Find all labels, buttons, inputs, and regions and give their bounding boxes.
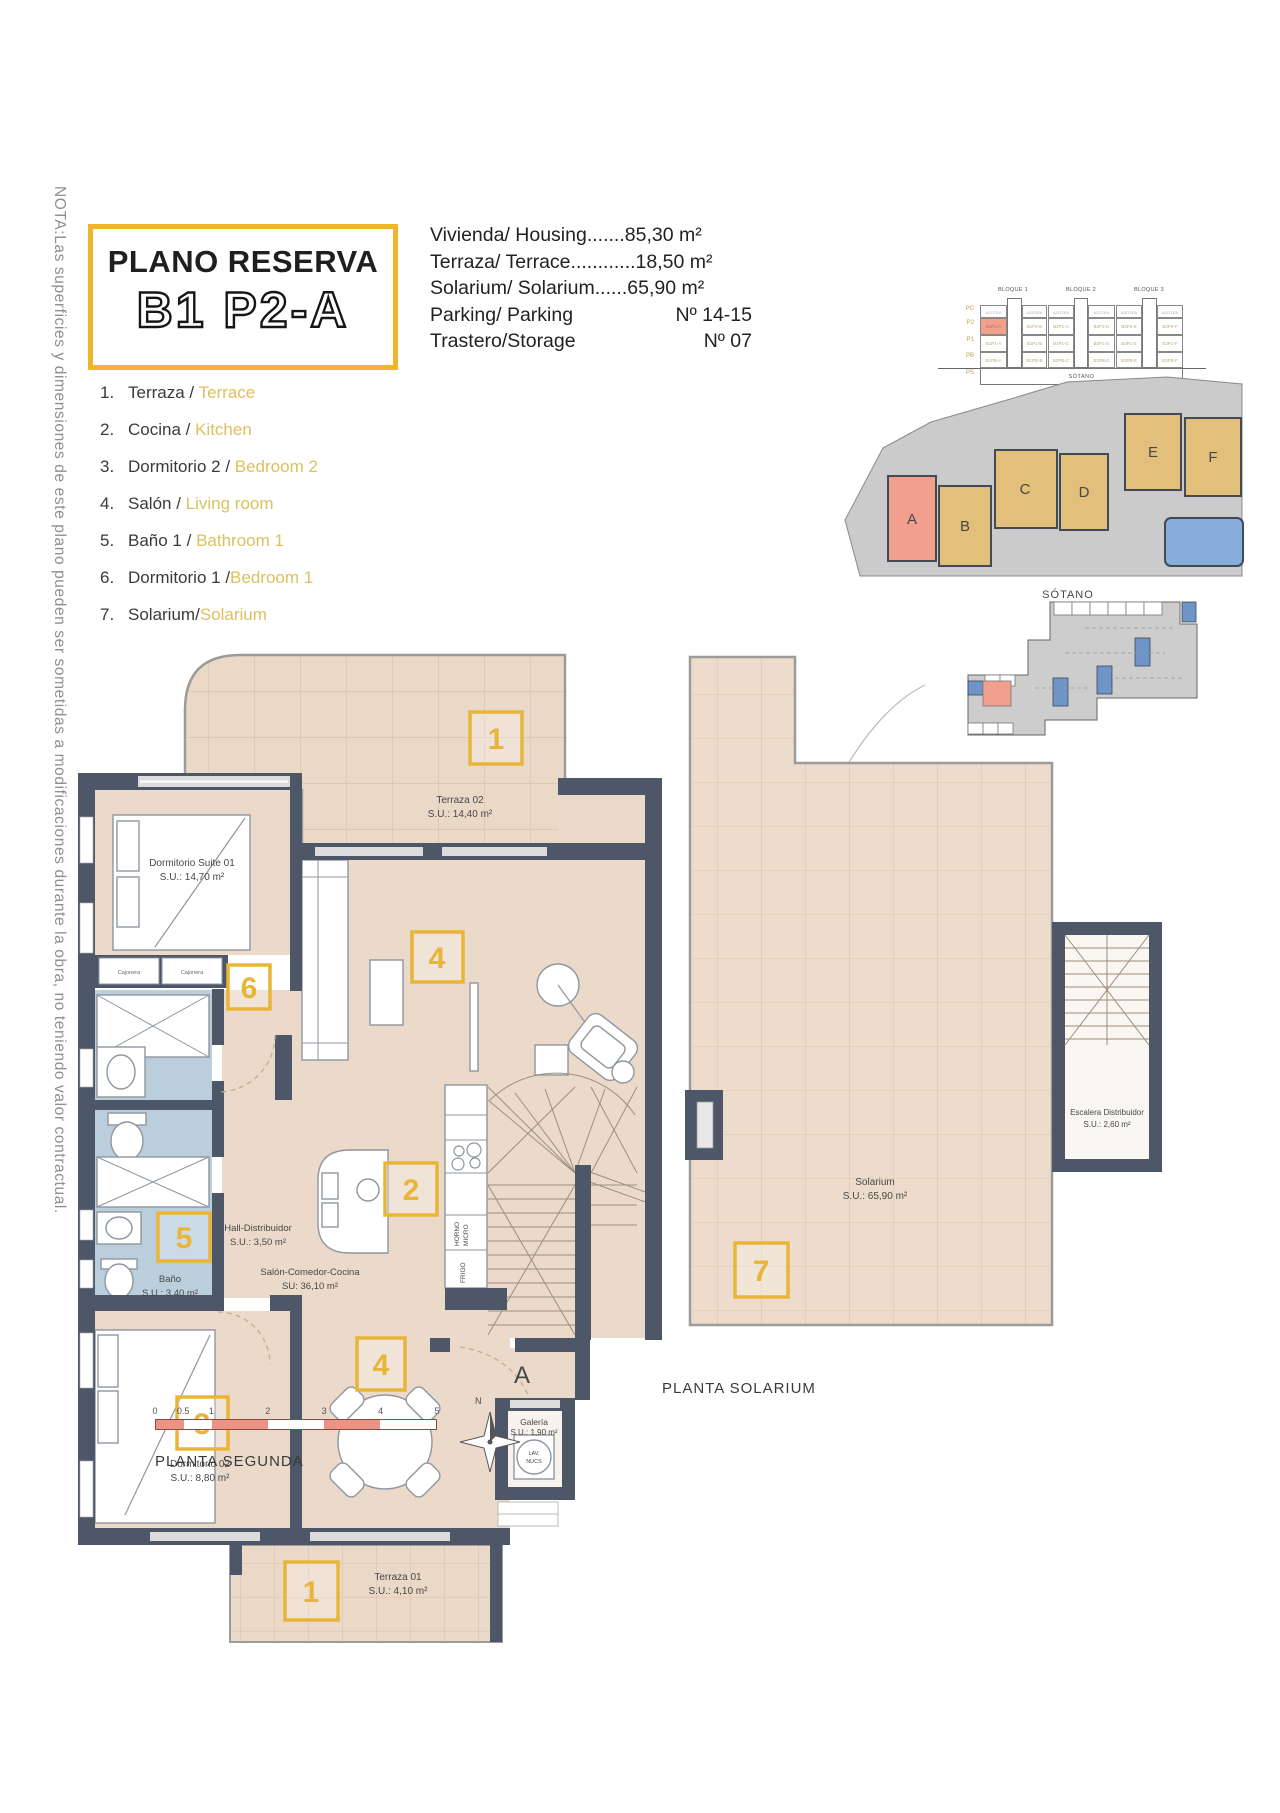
tag-suite: 6 xyxy=(228,965,270,1009)
caption-planta-segunda: PLANTA SEGUNDA xyxy=(155,1453,304,1470)
side-table xyxy=(535,1045,568,1075)
pool xyxy=(1165,518,1243,566)
site-letter-e: E xyxy=(1148,444,1158,461)
terraza01-name: Terraza 01 xyxy=(374,1572,422,1583)
main-floor-plan: HORNO MICRO FRIGO xyxy=(70,645,670,1655)
roof-cell: AZOTEA xyxy=(980,305,1007,318)
legend-item-7: 7.Solarium/Solarium xyxy=(100,605,318,642)
hall-name: Hall-Distribuidor xyxy=(224,1223,292,1234)
site-letter-c: C xyxy=(1020,481,1031,498)
room-legend: 1.Terraza / Terrace 2.Cocina / Kitchen 3… xyxy=(100,383,318,642)
unit-cell: B2PB-C xyxy=(1048,352,1074,368)
bano-name: Baño xyxy=(159,1274,181,1285)
wall-entry-left xyxy=(430,1338,450,1352)
svg-text:1: 1 xyxy=(488,723,505,756)
stair-tower xyxy=(1142,298,1157,368)
caption-planta-solarium: PLANTA SOLARIUM xyxy=(662,1380,816,1397)
tag-dining: 4 xyxy=(357,1338,405,1390)
horno-label: HORNO xyxy=(454,1222,461,1246)
spec-parking: Parking/ ParkingNº 14-15 xyxy=(430,302,752,329)
roof-cell: AZOTEA xyxy=(1048,305,1074,318)
site-letter-d: D xyxy=(1079,484,1090,501)
toilet-1 xyxy=(111,1122,143,1160)
wall-bath-hall xyxy=(212,1193,224,1311)
spec-vivienda: Vivienda/ Housing.......85,30 m² xyxy=(430,222,752,249)
tag-bano: 5 xyxy=(158,1213,210,1261)
legend-item-6: 6.Dormitorio 1 /Bedroom 1 xyxy=(100,568,318,605)
kitchen-island xyxy=(318,1150,388,1253)
title-box: PLANO RESERVA B1 P2-A xyxy=(88,224,398,370)
wall-counter-bottom xyxy=(445,1288,507,1310)
washer-label-1: LAV. xyxy=(528,1451,539,1457)
floor-label-p2: P2 xyxy=(944,320,974,326)
unit-cell: B2P2-C xyxy=(1048,318,1074,335)
tag-solarium: 7 xyxy=(735,1243,788,1297)
scale-segments xyxy=(155,1419,437,1430)
wall-left xyxy=(78,773,95,1545)
unit-cell: B3P1-E xyxy=(1116,335,1142,352)
unit-cell: B2P2-D xyxy=(1088,318,1115,335)
floor-label-pb: PB xyxy=(944,353,974,359)
plan-title: PLANO RESERVA xyxy=(93,244,393,280)
spec-solarium: Solarium/ Solarium......65,90 m² xyxy=(430,275,752,302)
terraza02-name: Terraza 02 xyxy=(436,795,484,806)
bano-area: S.U.: 3,40 m² xyxy=(142,1288,198,1299)
svg-text:2: 2 xyxy=(403,1174,420,1207)
wall-bath-divider xyxy=(95,1100,213,1110)
suite-area: S.U.: 14,70 m² xyxy=(160,872,225,883)
terraza02-area: S.U.: 14,40 m² xyxy=(428,809,493,820)
salon-area: SU: 36,10 m² xyxy=(282,1281,338,1292)
roof-cell: AZOTEA xyxy=(1157,305,1183,318)
cajonera-label-2: Cajonera xyxy=(181,970,204,976)
unit-cell: B1P1-A xyxy=(980,335,1007,352)
entry-letter: A xyxy=(514,1362,530,1389)
pillow xyxy=(98,1391,118,1443)
site-plan: A B C D E F xyxy=(835,368,1255,583)
floorplan-sheet: NOTA:Las superficies y dimensiones de es… xyxy=(0,0,1280,1813)
island-stool xyxy=(322,1173,338,1199)
svg-text:6: 6 xyxy=(241,972,258,1005)
tv-board xyxy=(470,983,478,1071)
terraza01-area: S.U.: 4,10 m² xyxy=(369,1586,429,1597)
unit-cell: B1PB-A xyxy=(980,352,1007,368)
stair-tower xyxy=(1007,298,1022,368)
tag-kitchen: 2 xyxy=(385,1163,437,1215)
sink-2 xyxy=(106,1217,132,1239)
unit-cell: B3PB-E xyxy=(1116,352,1142,368)
spec-trastero: Trastero/StorageNº 07 xyxy=(430,328,752,355)
washer-label-2: NUCS xyxy=(526,1459,542,1465)
island-stool xyxy=(322,1203,338,1227)
wall-entry-right xyxy=(515,1338,575,1352)
pillow xyxy=(98,1335,118,1387)
suite-name: Dormitorio Suite 01 xyxy=(149,858,235,869)
legend-item-5: 5.Baño 1 / Bathroom 1 xyxy=(100,531,318,568)
unit-cell: B2P1-D xyxy=(1088,335,1115,352)
elevation-block3-title: BLOQUE 3 xyxy=(1114,287,1184,293)
floor-label-p1: P1 xyxy=(944,337,974,343)
floor-label-pc: PC xyxy=(944,306,974,312)
unit-code: B1 P2-A xyxy=(93,281,393,339)
island-sink xyxy=(357,1179,379,1201)
wall-hall-stub xyxy=(275,1035,292,1100)
unit-cell: B3PB-F xyxy=(1157,352,1183,368)
coffee-table xyxy=(370,960,403,1025)
site-letter-f: F xyxy=(1208,449,1217,466)
north-label: N xyxy=(475,1396,482,1406)
solarium-plan: Escalera Distribuidor S.U.: 2,60 m² Sola… xyxy=(585,650,1185,1410)
unit-cell: B2PB-D xyxy=(1088,352,1115,368)
elevation-block1-title: BLOQUE 1 xyxy=(978,287,1048,293)
legend-item-4: 4.Salón / Living room xyxy=(100,494,318,531)
wall-bath-hall xyxy=(212,989,224,1045)
legend-item-3: 3.Dormitorio 2 / Bedroom 2 xyxy=(100,457,318,494)
unit-cell-highlight: B1P2-A xyxy=(980,318,1007,335)
ext-step xyxy=(498,1514,558,1526)
solarium-area: S.U.: 65,90 m² xyxy=(843,1191,908,1202)
cajonera-label-1: Cajonera xyxy=(118,970,141,976)
legend-item-1: 1.Terraza / Terrace xyxy=(100,383,318,420)
scale-bar: 0 0.5 1 2 3 4 5 xyxy=(155,1406,437,1430)
compass-icon: N xyxy=(455,1390,525,1480)
unit-cell: B3P2-E xyxy=(1116,318,1142,335)
wall-suite-right xyxy=(290,773,302,991)
unit-cell: B2P1-C xyxy=(1048,335,1074,352)
hall-area: S.U.: 3,50 m² xyxy=(230,1237,286,1248)
roof-cell: AZOTEA xyxy=(1022,305,1047,318)
salon-name: Salón-Comedor-Cocina xyxy=(260,1267,360,1278)
pillow xyxy=(117,877,139,927)
svg-text:5: 5 xyxy=(176,1222,193,1255)
unit-cell: B1P1-B xyxy=(1022,335,1047,352)
dorm2-area: S.U.: 8,80 m² xyxy=(171,1473,231,1484)
wall-terr01-stub xyxy=(490,1545,502,1642)
svg-text:7: 7 xyxy=(753,1255,770,1288)
surface-specs: Vivienda/ Housing.......85,30 m² Terraza… xyxy=(430,222,752,355)
legend-item-2: 2.Cocina / Kitchen xyxy=(100,420,318,457)
solarium-name: Solarium xyxy=(855,1177,894,1188)
svg-text:4: 4 xyxy=(429,942,446,975)
sotano-label: SÓTANO xyxy=(1042,588,1094,601)
svg-text:4: 4 xyxy=(373,1349,390,1382)
unit-cell: B3P2-F xyxy=(1157,318,1183,335)
spec-terraza: Terraza/ Terrace............18,50 m² xyxy=(430,249,752,276)
stair-enclosure: Escalera Distribuidor S.U.: 2,60 m² xyxy=(1052,922,1162,1172)
elevation-block2-title: BLOQUE 2 xyxy=(1046,287,1116,293)
frigo-label: FRIGO xyxy=(460,1262,467,1283)
sink-1 xyxy=(107,1055,135,1089)
solarium-left-slot xyxy=(697,1102,713,1148)
site-letter-b: B xyxy=(960,518,970,535)
tag-terraza02: 1 xyxy=(470,712,522,764)
note-vertical: NOTA:Las superficies y dimensiones de es… xyxy=(50,186,68,1316)
solarium-floor xyxy=(690,657,1052,1325)
wall-terr01-stub xyxy=(230,1545,242,1575)
ext-step xyxy=(498,1502,558,1514)
stairs-area: S.U.: 2,60 m² xyxy=(1083,1120,1130,1129)
tag-terraza01: 1 xyxy=(285,1562,338,1620)
toilet-2 xyxy=(105,1264,133,1298)
terraza01-floor xyxy=(230,1545,502,1642)
svg-text:1: 1 xyxy=(303,1576,320,1609)
site-letter-a: A xyxy=(907,511,917,528)
scale-ticks: 0 0.5 1 2 3 4 5 xyxy=(155,1406,437,1419)
stairs-name: Escalera Distribuidor xyxy=(1070,1108,1144,1117)
stair-tower xyxy=(1074,298,1088,368)
unit-cell: B3P1-F xyxy=(1157,335,1183,352)
sofa xyxy=(302,860,348,1060)
unit-cell: B1PB-B xyxy=(1022,352,1047,368)
pillow xyxy=(117,821,139,871)
micro-label: MICRO xyxy=(463,1224,470,1246)
roof-cell: AZOTEA xyxy=(1088,305,1115,318)
roof-cell: AZOTEA xyxy=(1116,305,1142,318)
tag-salon-upper: 4 xyxy=(412,932,463,982)
unit-cell: B1P2-B xyxy=(1022,318,1047,335)
